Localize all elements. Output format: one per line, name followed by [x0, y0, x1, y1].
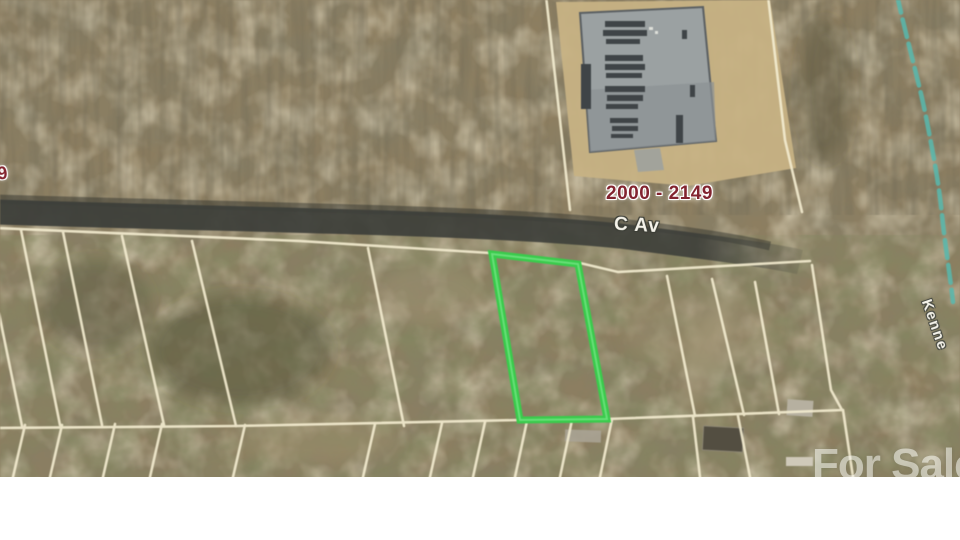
address-range-label: 2000 - 2149 [606, 183, 713, 205]
truck-yard [556, 0, 796, 186]
street-name-label: C Av [613, 214, 660, 238]
bottom-whitespace [0, 477, 960, 540]
aerial-map-image: 2000 - 2149 49 C Av Kenne For Sale [0, 0, 960, 478]
map-graphics [0, 0, 960, 478]
for-sale-watermark: For Sale [812, 440, 960, 478]
listing-map-screenshot: 2000 - 2149 49 C Av Kenne For Sale [0, 0, 960, 540]
